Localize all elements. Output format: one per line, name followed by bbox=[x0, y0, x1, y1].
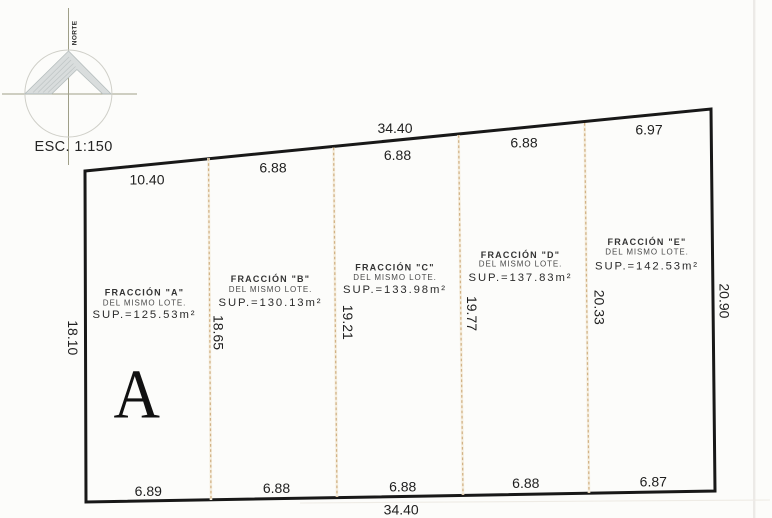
svg-text:18.65: 18.65 bbox=[211, 315, 227, 350]
svg-text:19.21: 19.21 bbox=[340, 305, 356, 340]
svg-text:DEL MISMO LOTE.: DEL MISMO LOTE. bbox=[479, 260, 562, 269]
svg-text:19.77: 19.77 bbox=[464, 296, 480, 331]
svg-text:FRACCIÓN "D": FRACCIÓN "D" bbox=[481, 249, 560, 260]
svg-text:ESC. 1:150: ESC. 1:150 bbox=[35, 139, 113, 155]
svg-text:NORTE: NORTE bbox=[72, 20, 79, 45]
svg-text:FRACCIÓN "C": FRACCIÓN "C" bbox=[355, 262, 434, 273]
svg-text:SUP.=130.13m²: SUP.=130.13m² bbox=[219, 297, 323, 309]
svg-text:20.90: 20.90 bbox=[717, 283, 733, 318]
svg-text:6.88: 6.88 bbox=[389, 478, 416, 494]
svg-text:6.88: 6.88 bbox=[263, 480, 290, 496]
svg-text:DEL MISMO LOTE.: DEL MISMO LOTE. bbox=[103, 298, 186, 307]
svg-text:34.40: 34.40 bbox=[377, 120, 412, 136]
svg-text:DEL MISMO LOTE.: DEL MISMO LOTE. bbox=[353, 273, 436, 282]
svg-text:6.88: 6.88 bbox=[259, 159, 286, 175]
svg-text:FRACCIÓN "B": FRACCIÓN "B" bbox=[231, 273, 310, 284]
svg-text:6.87: 6.87 bbox=[640, 473, 667, 489]
svg-text:18.10: 18.10 bbox=[65, 320, 81, 355]
svg-text:SUP.=125.53m²: SUP.=125.53m² bbox=[93, 309, 197, 321]
svg-text:SUP.=142.53m²: SUP.=142.53m² bbox=[595, 260, 699, 272]
svg-text:DEL MISMO LOTE.: DEL MISMO LOTE. bbox=[229, 285, 312, 294]
svg-text:DEL MISMO LOTE.: DEL MISMO LOTE. bbox=[605, 248, 688, 257]
svg-text:34.40: 34.40 bbox=[384, 502, 419, 518]
svg-text:FRACCIÓN "A": FRACCIÓN "A" bbox=[105, 287, 184, 298]
svg-text:6.97: 6.97 bbox=[635, 121, 662, 137]
svg-text:6.88: 6.88 bbox=[384, 147, 411, 163]
svg-text:6.88: 6.88 bbox=[510, 135, 537, 151]
svg-text:10.40: 10.40 bbox=[129, 172, 164, 188]
svg-text:20.33: 20.33 bbox=[592, 290, 608, 325]
svg-text:FRACCIÓN "E": FRACCIÓN "E" bbox=[608, 236, 687, 247]
svg-text:6.88: 6.88 bbox=[512, 475, 539, 491]
svg-text:SUP.=133.98m²: SUP.=133.98m² bbox=[343, 284, 447, 296]
svg-text:SUP.=137.83m²: SUP.=137.83m² bbox=[469, 272, 573, 284]
svg-text:A: A bbox=[114, 357, 161, 434]
svg-text:6.89: 6.89 bbox=[135, 483, 162, 499]
